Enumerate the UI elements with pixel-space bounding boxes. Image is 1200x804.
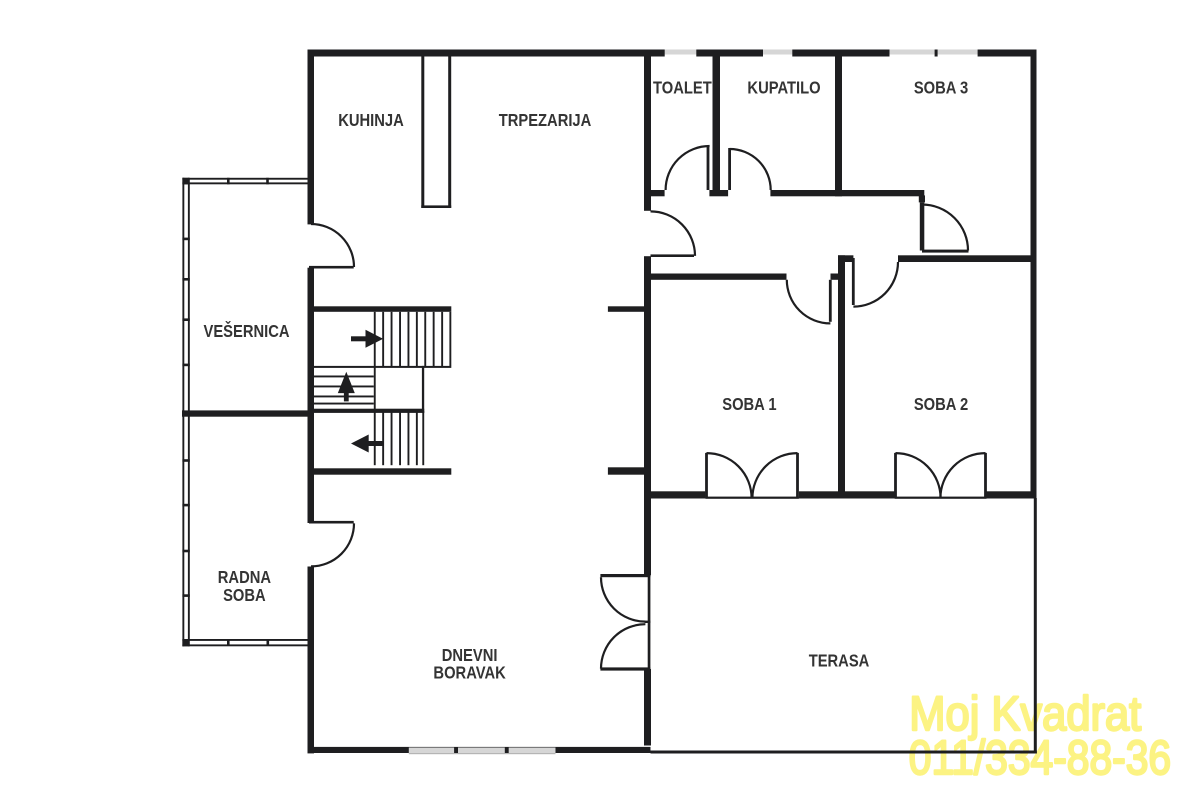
svg-text:TRPEZARIJA: TRPEZARIJA: [499, 111, 592, 131]
svg-text:011/334-88-36: 011/334-88-36: [909, 732, 1171, 785]
svg-text:TERASA: TERASA: [809, 651, 870, 671]
svg-text:RADNA: RADNA: [218, 568, 271, 588]
svg-text:SOBA 3: SOBA 3: [914, 78, 968, 98]
svg-text:DNEVNI: DNEVNI: [442, 645, 498, 665]
svg-text:TOALET: TOALET: [653, 78, 712, 98]
svg-text:SOBA 2: SOBA 2: [914, 395, 968, 415]
svg-text:VEŠERNICA: VEŠERNICA: [203, 321, 289, 342]
svg-text:KUHINJA: KUHINJA: [338, 111, 404, 131]
svg-text:BORAVAK: BORAVAK: [433, 663, 505, 683]
svg-text:SOBA: SOBA: [223, 586, 266, 606]
svg-text:KUPATILO: KUPATILO: [747, 78, 820, 98]
svg-text:SOBA 1: SOBA 1: [722, 395, 776, 415]
